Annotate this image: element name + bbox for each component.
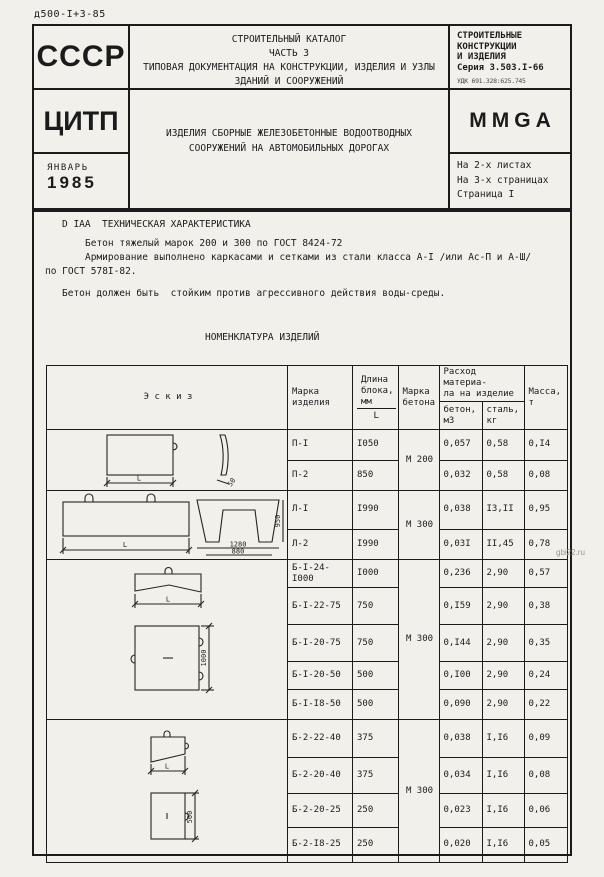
lifting-hook-icon [199, 672, 203, 680]
tech-paragraph-concrete: Бетон тяжелый марок 200 и 300 по ГОСТ 84… [85, 238, 342, 249]
tech-paragraph-gost: по ГОСТ 578I-82. [45, 266, 137, 277]
col-header-grade: Марка бетона [398, 366, 439, 430]
col-header-length-label: Длина блока, мм [357, 372, 396, 408]
length-cell: 250 [353, 793, 399, 827]
mark-cell: Б-I-20-75 [288, 625, 353, 662]
steel-cell: I,I6 [482, 758, 524, 793]
udc-number: УДК 691.328:625.745 [457, 77, 570, 85]
mass-cell: 0,05 [524, 827, 567, 862]
mass-cell: 0,24 [524, 662, 567, 690]
lifting-hook-icon [165, 567, 172, 574]
dim-label: 50 [226, 477, 237, 489]
mark-cell: П-2 [288, 460, 353, 491]
mass-cell: 0,22 [524, 690, 567, 720]
steel-cell: 0,58 [482, 460, 524, 491]
steel-cell: 2,90 [482, 625, 524, 662]
table-header-row: Э с к и з Марка изделия Длина блока, мм … [47, 366, 568, 402]
document-page: д500-I+3-85 СССР ЦИТП ЯНВАРЬ 1985 СТРОИТ… [0, 0, 604, 877]
sketch-b1-blocks: L 1000 [47, 560, 288, 720]
mass-cell: 0,08 [524, 460, 567, 491]
mass-cell: 0,09 [524, 720, 567, 758]
mark-cell: Б-2-20-25 [288, 793, 353, 827]
length-cell: 750 [353, 625, 399, 662]
concrete-cell: 0,236 [439, 560, 482, 588]
steel-cell: 2,90 [482, 662, 524, 690]
document-subject: ИЗДЕЛИЯ СБОРНЫЕ ЖЕЛЕЗОБЕТОННЫЕ ВОДООТВОД… [130, 90, 450, 208]
issue-year: 1985 [47, 173, 128, 193]
lifting-hook-icon [147, 494, 155, 502]
concrete-cell: 0,03I [439, 529, 482, 559]
col-header-sketch: Э с к и з [47, 366, 288, 430]
steel-cell: 2,90 [482, 560, 524, 588]
lifting-hook-icon [131, 655, 135, 663]
steel-cell: I,I6 [482, 827, 524, 862]
length-cell: I000 [353, 560, 399, 588]
concrete-cell: 0,I44 [439, 625, 482, 662]
series-block: СТРОИТЕЛЬНЫЕ КОНСТРУКЦИИ И ИЗДЕЛИЯ Серия… [450, 26, 570, 90]
steel-cell: II,45 [482, 529, 524, 559]
steel-cell: 0,58 [482, 430, 524, 461]
length-cell: I990 [353, 529, 399, 559]
mass-cell: 0,I4 [524, 430, 567, 461]
lifting-hook-icon [85, 494, 93, 502]
concrete-cell: 0,090 [439, 690, 482, 720]
col-header-steel: сталь, кг [482, 402, 524, 430]
table-row: L 1280 880 950 Л-I I990 М 300 0,03 [47, 491, 568, 530]
col-header-length-symbol: L [357, 408, 396, 423]
grade-cell: М 300 [398, 560, 439, 720]
org-citp-label: ЦИТП [34, 90, 130, 154]
issue-date: ЯНВАРЬ 1985 [34, 154, 130, 208]
table-row: L 1000 Б-I-24-I000 I00 [47, 560, 568, 588]
series-title: СТРОИТЕЛЬНЫЕ КОНСТРУКЦИИ И ИЗДЕЛИЯ Серия… [457, 31, 570, 73]
mark-cell: Б-2-22-40 [288, 720, 353, 758]
mark-cell: Б-I-I8-50 [288, 690, 353, 720]
mass-cell: 0,35 [524, 625, 567, 662]
mass-cell: 0,08 [524, 758, 567, 793]
col-header-concrete: бетон, м3 [439, 402, 482, 430]
mark-cell: Б-I-20-50 [288, 662, 353, 690]
steel-cell: I,I6 [482, 793, 524, 827]
length-cell: I050 [353, 430, 399, 461]
nomenclature-table: Э с к и з Марка изделия Длина блока, мм … [46, 365, 568, 863]
steel-cell: I,I6 [482, 720, 524, 758]
document-body: D IAA ТЕХНИЧЕСКАЯ ХАРАКТЕРИСТИКА Бетон т… [32, 210, 572, 856]
col-header-length: Длина блока, мм L [353, 366, 399, 430]
table-row: L 50 П-I I050 М 200 0,057 0,58 0,I4 [47, 430, 568, 461]
tech-paragraph-reinforcement: Армирование выполнено каркасами и сеткам… [85, 252, 531, 263]
table-row: L 500 Б-2-22-40 375 М 300 0,038 [47, 720, 568, 758]
dim-label: 500 [186, 811, 194, 824]
col-header-consumption: Расход материа- ла на изделие [439, 366, 524, 402]
mark-cell: Б-2-I8-25 [288, 827, 353, 862]
document-code: д500-I+3-85 [34, 9, 106, 20]
org-ussr-label: СССР [34, 26, 130, 90]
issue-month: ЯНВАРЬ [47, 163, 128, 173]
steel-cell: I3,II [482, 491, 524, 530]
mass-cell: 0,95 [524, 491, 567, 530]
length-cell: I990 [353, 491, 399, 530]
concrete-cell: 0,I59 [439, 588, 482, 625]
sketch-slab-plain: L 50 [47, 430, 288, 491]
steel-cell: 2,90 [482, 690, 524, 720]
lifting-hook-icon [164, 731, 170, 737]
dim-label: 880 [232, 548, 245, 556]
grade-cell: М 300 [398, 491, 439, 560]
concrete-cell: 0,I00 [439, 662, 482, 690]
length-cell: 375 [353, 758, 399, 793]
concrete-cell: 0,020 [439, 827, 482, 862]
length-cell: 850 [353, 460, 399, 491]
col-header-mass: Масса, т [524, 366, 567, 430]
steel-cell: 2,90 [482, 588, 524, 625]
mark-cell: Л-2 [288, 529, 353, 559]
dim-label: L [166, 595, 170, 603]
mark-cell: Л-I [288, 491, 353, 530]
length-cell: 500 [353, 662, 399, 690]
mark-cell: Б-2-20-40 [288, 758, 353, 793]
sheets-info: На 2-х листах На 3-х страницах Страница … [450, 154, 570, 208]
grade-cell: М 200 [398, 430, 439, 491]
title-block: СССР ЦИТП ЯНВАРЬ 1985 СТРОИТЕЛЬНЫЙ КАТАЛ… [32, 24, 572, 210]
mark-cell: П-I [288, 430, 353, 461]
grade-cell: М 300 [398, 720, 439, 863]
concrete-cell: 0,032 [439, 460, 482, 491]
concrete-cell: 0,038 [439, 720, 482, 758]
mark-cell: Б-I-24-I000 [288, 560, 353, 588]
dim-label: L [165, 763, 169, 771]
concrete-cell: 0,038 [439, 491, 482, 530]
length-cell: 500 [353, 690, 399, 720]
sketch-b2-blocks: L 500 [47, 720, 288, 863]
tech-paragraph-water: Бетон должен быть стойким против агресси… [62, 288, 445, 299]
concrete-cell: 0,023 [439, 793, 482, 827]
mass-cell: 0,57 [524, 560, 567, 588]
length-cell: 750 [353, 588, 399, 625]
mass-cell: 0,38 [524, 588, 567, 625]
col-header-mark: Марка изделия [288, 366, 353, 430]
lifting-hook-icon [173, 443, 177, 450]
dim-label: 950 [274, 515, 282, 528]
lifting-hook-icon [199, 638, 203, 646]
tech-section-heading: D IAA ТЕХНИЧЕСКАЯ ХАРАКТЕРИСТИКА [62, 219, 251, 230]
catalog-title: СТРОИТЕЛЬНЫЙ КАТАЛОГ ЧАСТЬ 3 ТИПОВАЯ ДОК… [130, 26, 450, 90]
mark-cell: Б-I-22-75 [288, 588, 353, 625]
sketch-tray-block: L 1280 880 950 [47, 491, 288, 560]
concrete-cell: 0,034 [439, 758, 482, 793]
nomenclature-heading: НОМЕНКЛАТУРА ИЗДЕЛИЙ [205, 332, 319, 343]
dim-label: L [137, 475, 141, 483]
dim-label: L [123, 541, 127, 549]
site-watermark: gbi22.ru [556, 548, 585, 557]
concrete-cell: 0,057 [439, 430, 482, 461]
length-cell: 250 [353, 827, 399, 862]
mass-cell: 0,06 [524, 793, 567, 827]
dim-label: 1000 [200, 649, 208, 666]
length-cell: 375 [353, 720, 399, 758]
document-stamp-code: MMGA [450, 90, 570, 154]
